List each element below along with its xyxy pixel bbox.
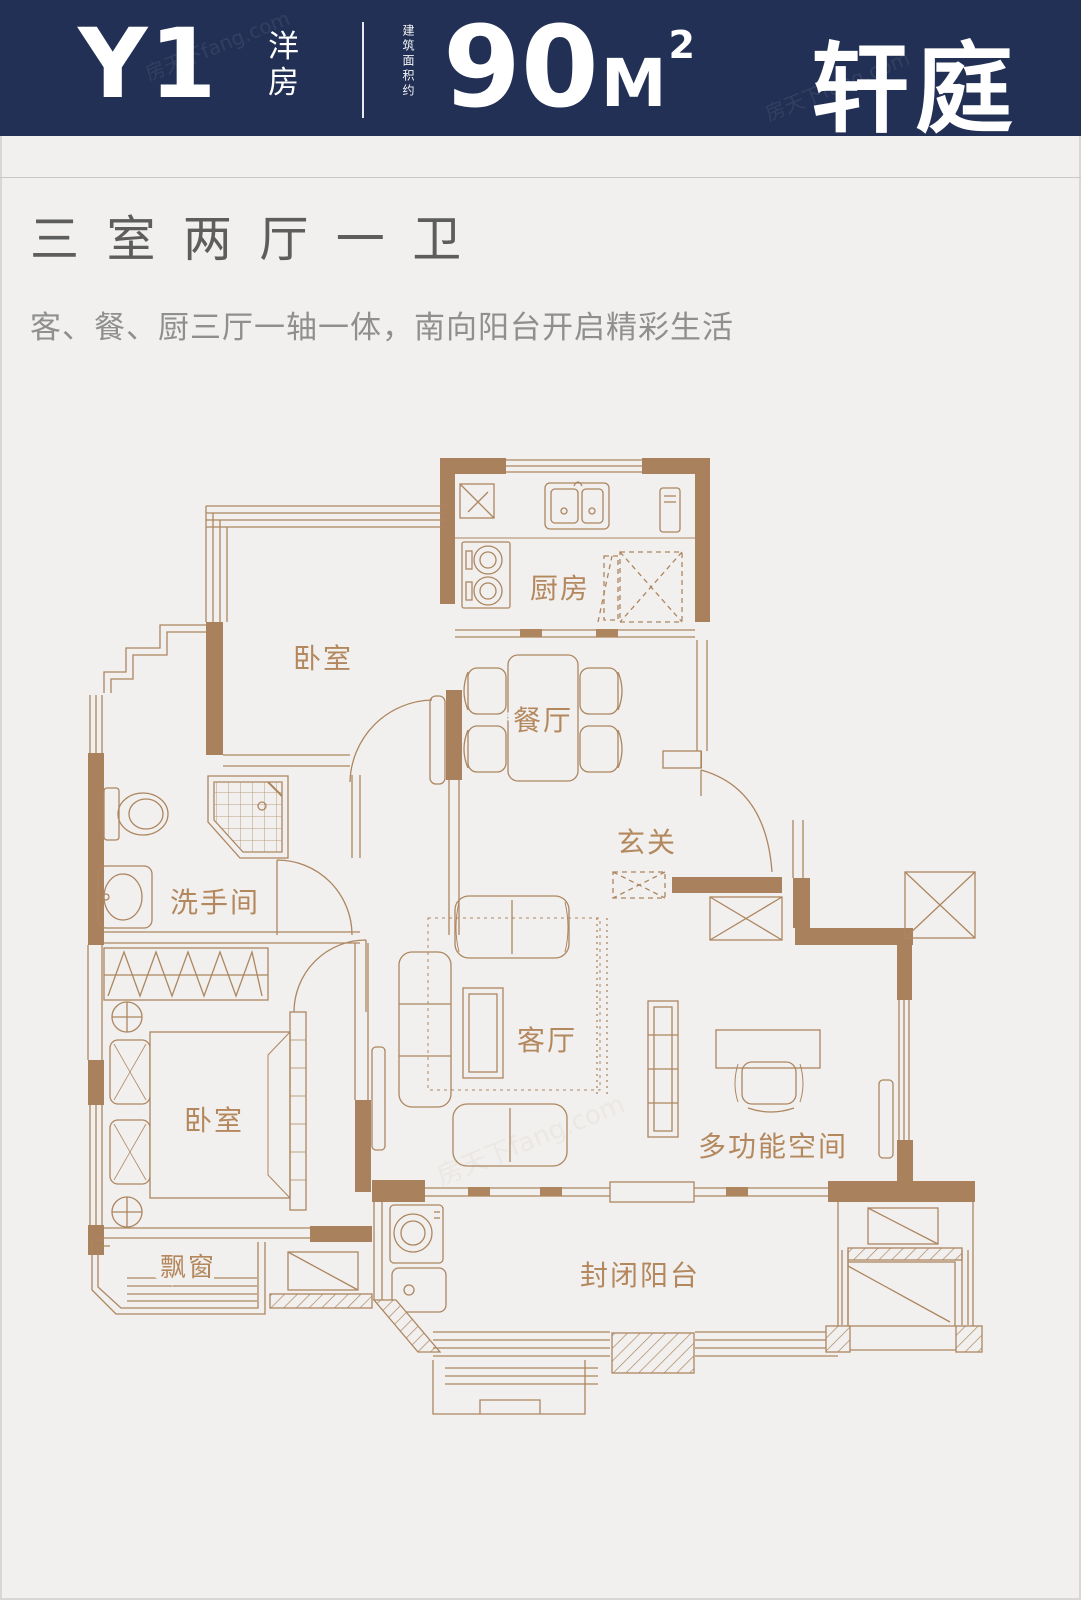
room-label-balcony: 封闭阳台 (580, 1259, 700, 1292)
header-divider (362, 22, 364, 118)
balcony (374, 1182, 838, 1414)
corridor-walls (355, 780, 459, 1100)
area-superscript: 2 (669, 23, 695, 67)
unit-name: 轩庭 (811, 10, 1019, 136)
floorplan-page: 房天下fang.com 房天下fang.com Y1 洋 房 建筑面积约 90 … (0, 0, 1081, 1600)
header-rule (0, 177, 1081, 178)
side-balcony (826, 1202, 982, 1352)
area-prefix-label: 建筑面积约 (400, 24, 417, 99)
bay-window (92, 1240, 372, 1314)
room-label-foyer: 玄关 (617, 826, 677, 859)
bedroom-top (223, 696, 445, 784)
room-label-multi: 多功能空间 (698, 1130, 848, 1163)
kitchen-window (506, 460, 642, 472)
bedroom-bottom (104, 940, 366, 1238)
unit-code: Y1 (78, 8, 218, 120)
area-group: 90 M 2 (443, 0, 693, 136)
area-unit: M (601, 45, 667, 122)
layout-title: 三室两厅一卫 (30, 200, 489, 271)
area-value: 90 (443, 0, 599, 136)
room-label-bathroom: 洗手间 (170, 886, 260, 919)
bedroom-top-window (104, 506, 446, 693)
layout-subtitle: 客、餐、厨三厅一轴一体，南向阳台开启精彩生活 (30, 302, 734, 347)
unit-type-label: 洋 房 (268, 30, 299, 101)
bathroom-window (90, 695, 102, 753)
room-label-kitchen: 厨房 (530, 572, 590, 605)
header-bar: 房天下fang.com 房天下fang.com Y1 洋 房 建筑面积约 90 … (0, 0, 1081, 136)
room-label-bedroom-bottom: 卧室 (184, 1104, 244, 1137)
room-label-living: 客厅 (517, 1024, 577, 1057)
kitchen (455, 482, 695, 637)
room-label-dining: 餐厅 (513, 704, 573, 737)
room-label-bedroom-top: 卧室 (293, 642, 353, 675)
dining-room (464, 640, 707, 781)
room-label-bay-window: 飘窗 (160, 1253, 216, 1283)
floor-plan: 厨房 卧室 餐厅 玄关 洗手间 客厅 卧室 多功能空间 飘窗 封闭阳台 (0, 420, 1081, 1460)
